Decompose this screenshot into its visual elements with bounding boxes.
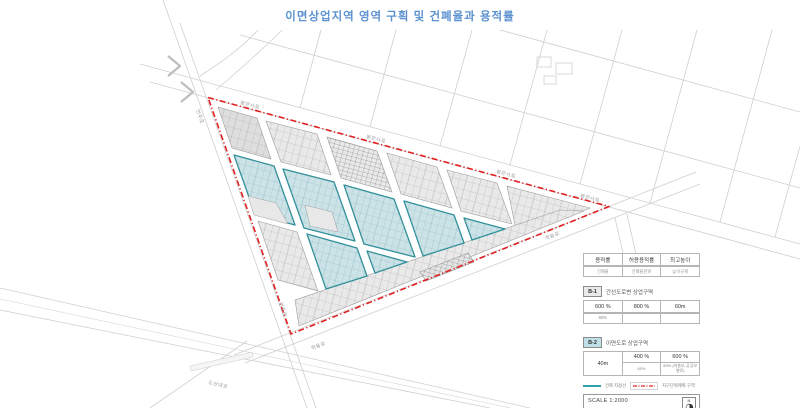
b2-height: 40m [584,352,623,376]
legend-panel: 용적률 허용용적률 최고높이 건폐율 건폐율완화 높이규제 B-1 간선도로변 … [583,253,700,408]
b1-height: 60m [661,301,700,313]
zone-b1-values: 600 % 800 % 60m [583,300,700,313]
b1-allowed-far: 800 % [623,301,662,313]
page-title: 이면상업지역 영역 구획 및 건폐율과 용적률 [0,8,800,24]
zone-b1-header: B-1 간선도로변 상업구역 [583,286,700,297]
zone-b1-chip: B-1 [583,286,602,297]
zone-b1-name: 간선도로변 상업구역 [606,288,653,296]
b2-bcr: 60% [623,363,662,376]
north-arrow-icon: N [682,397,696,408]
summary-table-subheader: 건폐율 건폐율완화 높이규제 [583,266,700,277]
b1-height-note [661,314,700,324]
summary-subheader-cell: 건폐율 [584,267,623,277]
b1-block [218,107,271,159]
b2-allowed-far: 600 % [661,352,700,363]
building-line-label: 건축 지정선 [605,383,626,389]
building-line-sample [583,385,601,387]
map-line-legend: 건축 지정선 지구단위계획 구역 [583,381,700,390]
zone-b1-subvalues: 60% [583,313,700,324]
compass-icon [685,403,694,408]
road-label: 도산대로 [208,379,229,390]
road-label: 언주로 [277,301,289,317]
district-boundary-sample [630,382,658,390]
red-dashdot-icon [632,384,656,388]
b2-bcr-relaxed: 80% (저층부-공공보행로) [661,363,700,376]
b1-far: 600 % [584,301,623,313]
b1-block [258,221,318,291]
b2-block [344,185,415,257]
scale-box: SCALE 1:2000 N 0 25 50 100m [583,394,700,408]
scale-label: SCALE 1:2000 [588,398,628,404]
b1-bcr-relaxed [623,314,662,324]
summary-table-header: 용적률 허용용적률 최고높이 [583,253,700,266]
road-label: 봉은사로 [579,192,600,204]
district-boundary-label: 지구단위계획 구역 [662,383,695,389]
summary-subheader-cell: 건폐율완화 [623,267,662,277]
b1-bcr: 60% [584,314,623,324]
summary-subheader-cell: 높이규제 [661,267,700,277]
zone-b2-header: B-2 이면도로 상업구역 [583,337,700,348]
b2-far: 400 % [623,352,662,363]
b2-block [283,169,355,241]
road-label: 학동로 [310,340,327,352]
zone-b2-values: 400 % 600 % 40m 60% 80% (저층부-공공보행로) [583,351,700,376]
summary-header-cell: 허용용적률 [623,254,662,266]
zone-b2-name: 이면도로 상업구역 [606,339,648,347]
zone-b2-chip: B-2 [583,337,602,348]
summary-header-cell: 용적률 [584,254,623,266]
zoning-plan-page: 봉은사로 봉은사로 봉은사로 봉은사로 학동로 학동로 언주로 언주로 도산대로… [0,0,800,408]
summary-header-cell: 최고높이 [661,254,700,266]
